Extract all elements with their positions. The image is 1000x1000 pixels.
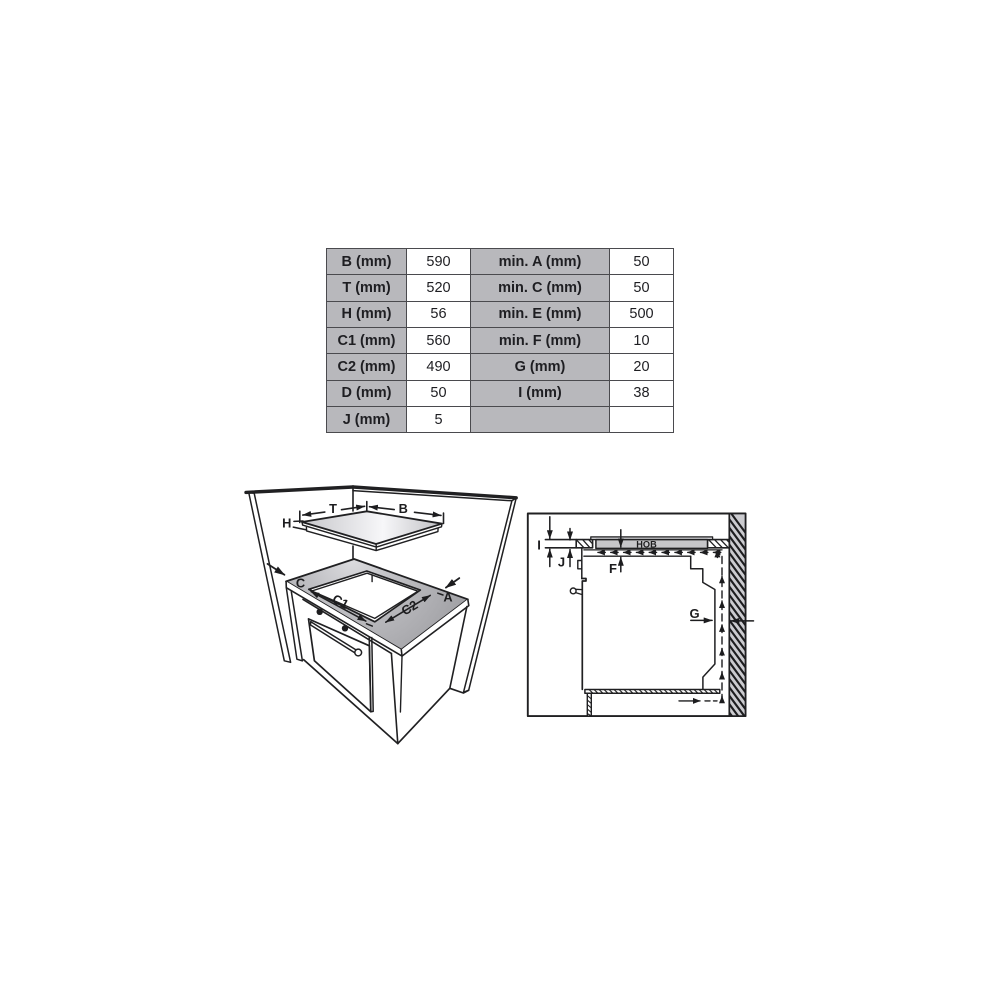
svg-text:C: C bbox=[296, 576, 305, 591]
svg-text:I: I bbox=[537, 538, 541, 553]
svg-text:HOB: HOB bbox=[636, 539, 657, 549]
svg-text:F: F bbox=[609, 561, 617, 576]
svg-text:H: H bbox=[282, 515, 291, 530]
svg-text:T: T bbox=[329, 501, 337, 516]
svg-text:G: G bbox=[689, 606, 699, 621]
svg-text:J: J bbox=[558, 555, 565, 570]
svg-text:B: B bbox=[399, 501, 408, 516]
svg-text:A: A bbox=[443, 590, 452, 605]
